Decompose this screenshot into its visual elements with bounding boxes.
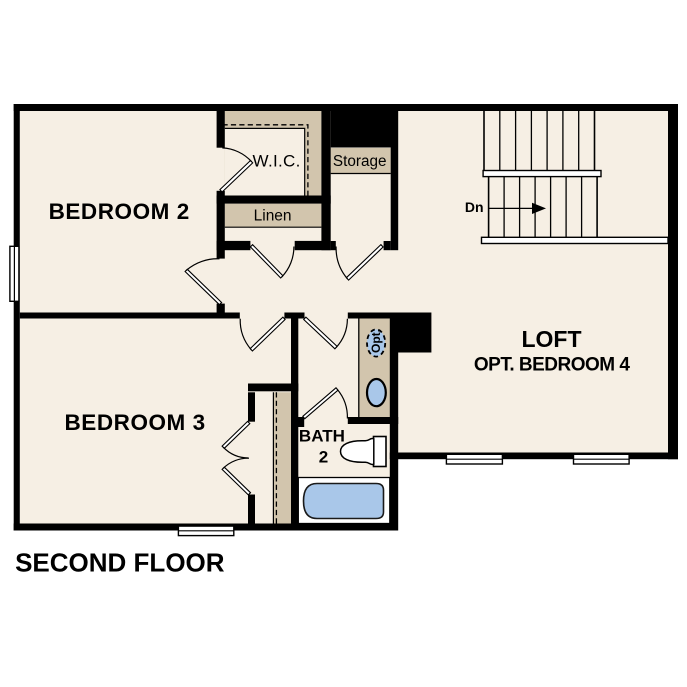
svg-text:SECOND FLOOR: SECOND FLOOR — [15, 548, 225, 578]
svg-text:Dn: Dn — [465, 199, 484, 215]
svg-text:LOFT: LOFT — [521, 326, 581, 352]
svg-text:BATH: BATH — [299, 426, 345, 445]
svg-text:2: 2 — [319, 448, 328, 467]
svg-text:W.I.C.: W.I.C. — [253, 151, 301, 170]
svg-text:Opt.: Opt. — [369, 329, 383, 353]
svg-text:Storage: Storage — [333, 153, 387, 170]
svg-text:BEDROOM 3: BEDROOM 3 — [64, 410, 205, 435]
svg-text:OPT. BEDROOM 4: OPT. BEDROOM 4 — [474, 355, 631, 376]
svg-text:BEDROOM 2: BEDROOM 2 — [49, 199, 190, 224]
svg-text:Linen: Linen — [254, 208, 292, 225]
